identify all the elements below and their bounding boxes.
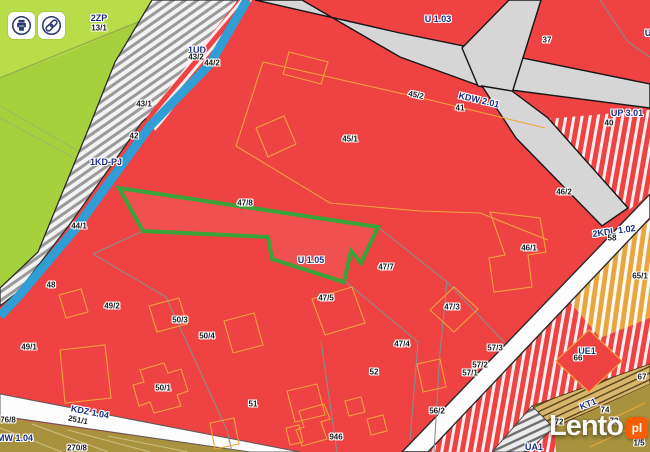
watermark-brand: Lento bbox=[549, 413, 623, 439]
lento-watermark: Lento pl bbox=[549, 413, 648, 439]
share-link-button[interactable] bbox=[38, 12, 65, 39]
printer-icon bbox=[11, 15, 32, 36]
watermark-tld-badge: pl bbox=[626, 417, 648, 439]
map-viewport[interactable]: 2ZP1UDU 1.03KDW 2.01UP 3.01U1KD-PJU 1.05… bbox=[0, 0, 650, 452]
print-button[interactable] bbox=[8, 12, 35, 39]
zoning-map-svg bbox=[0, 0, 650, 452]
link-icon bbox=[41, 15, 62, 36]
